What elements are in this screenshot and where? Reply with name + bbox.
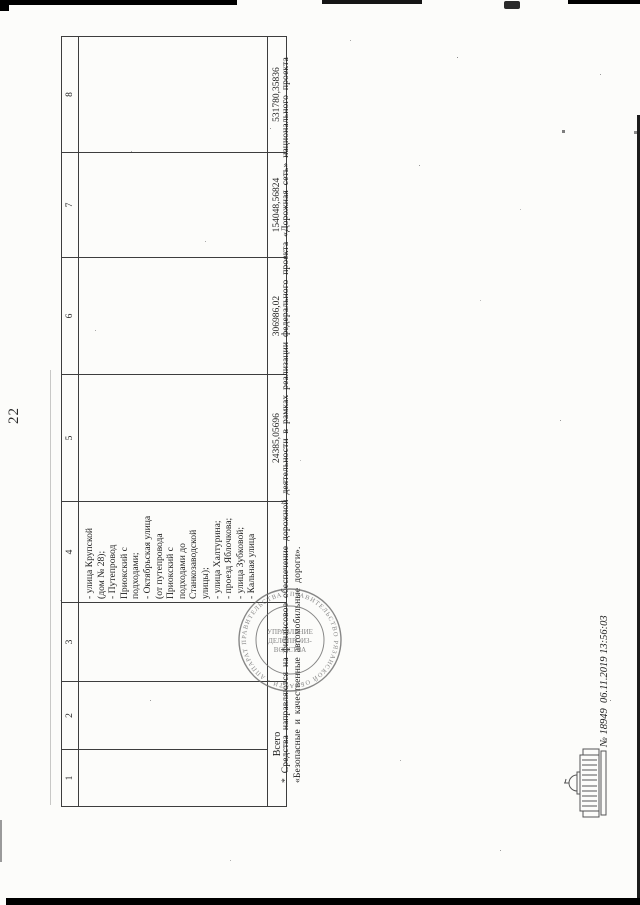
scan-edge-artifact — [504, 1, 520, 9]
scan-edge-artifact — [6, 898, 640, 905]
scan-edge-artifact — [322, 0, 422, 4]
street-line: Приокский с — [119, 504, 131, 599]
scan-edge-artifact — [0, 820, 2, 862]
street-line: (от путепровода — [154, 504, 166, 599]
table-header-row: 1 2 3 4 5 6 7 8 — [62, 37, 79, 807]
street-line: Станкозаводской — [188, 504, 200, 599]
column-header: 1 — [62, 750, 79, 807]
column-header: 5 — [62, 375, 79, 502]
street-line: - Путепровод — [107, 504, 119, 599]
street-line: подходами; — [130, 504, 142, 599]
street-line: - улица Крупской — [84, 504, 96, 599]
scan-fold-line — [50, 370, 51, 805]
empty-cell — [79, 258, 268, 375]
street-line: - Октябрьская улица — [142, 504, 154, 599]
scan-edge-artifact — [568, 0, 640, 4]
page-number: 22 — [6, 394, 23, 424]
government-building-icon — [562, 748, 608, 818]
scan-edge-artifact — [0, 0, 237, 5]
scan-edge-artifact — [0, 0, 9, 11]
street-line: (дом № 28); — [96, 504, 108, 599]
column-header: 6 — [62, 258, 79, 375]
empty-cell — [79, 37, 268, 153]
seal-center-line: ДЕЛОПРОИЗ- — [268, 637, 312, 645]
street-line: - улица Халтурина; — [212, 504, 224, 599]
column-header: 4 — [62, 502, 79, 603]
document-page: 22 1 2 3 4 5 6 7 8 - улиц — [0, 0, 640, 905]
registration-number: № 18949 06.11.2019 13:56:03 — [599, 615, 610, 747]
column-header: 8 — [62, 37, 79, 153]
government-seal: ПРАВИТЕЛЬСТВО РЯЗАНСКОЙ ОБЛАСТИ • АППАРА… — [237, 587, 343, 693]
empty-cell — [79, 375, 268, 502]
seal-center-line: УПРАВЛЕНИЕ — [267, 628, 313, 636]
empty-cell — [79, 750, 268, 807]
street-line: Приокский с — [165, 504, 177, 599]
column-header: 3 — [62, 603, 79, 682]
seal-center-line: ВОДСТВА — [274, 646, 306, 654]
street-line: - проезд Яблочкова; — [223, 504, 235, 599]
street-line: подходами до — [177, 504, 189, 599]
street-line: - Кальная улица — [246, 504, 258, 599]
empty-cell — [79, 153, 268, 258]
street-line: - улица Зубковой; — [235, 504, 247, 599]
column-header: 7 — [62, 153, 79, 258]
street-line: улицы); — [200, 504, 212, 599]
scanned-page: 22 1 2 3 4 5 6 7 8 - улиц — [0, 0, 640, 905]
column-header: 2 — [62, 682, 79, 750]
